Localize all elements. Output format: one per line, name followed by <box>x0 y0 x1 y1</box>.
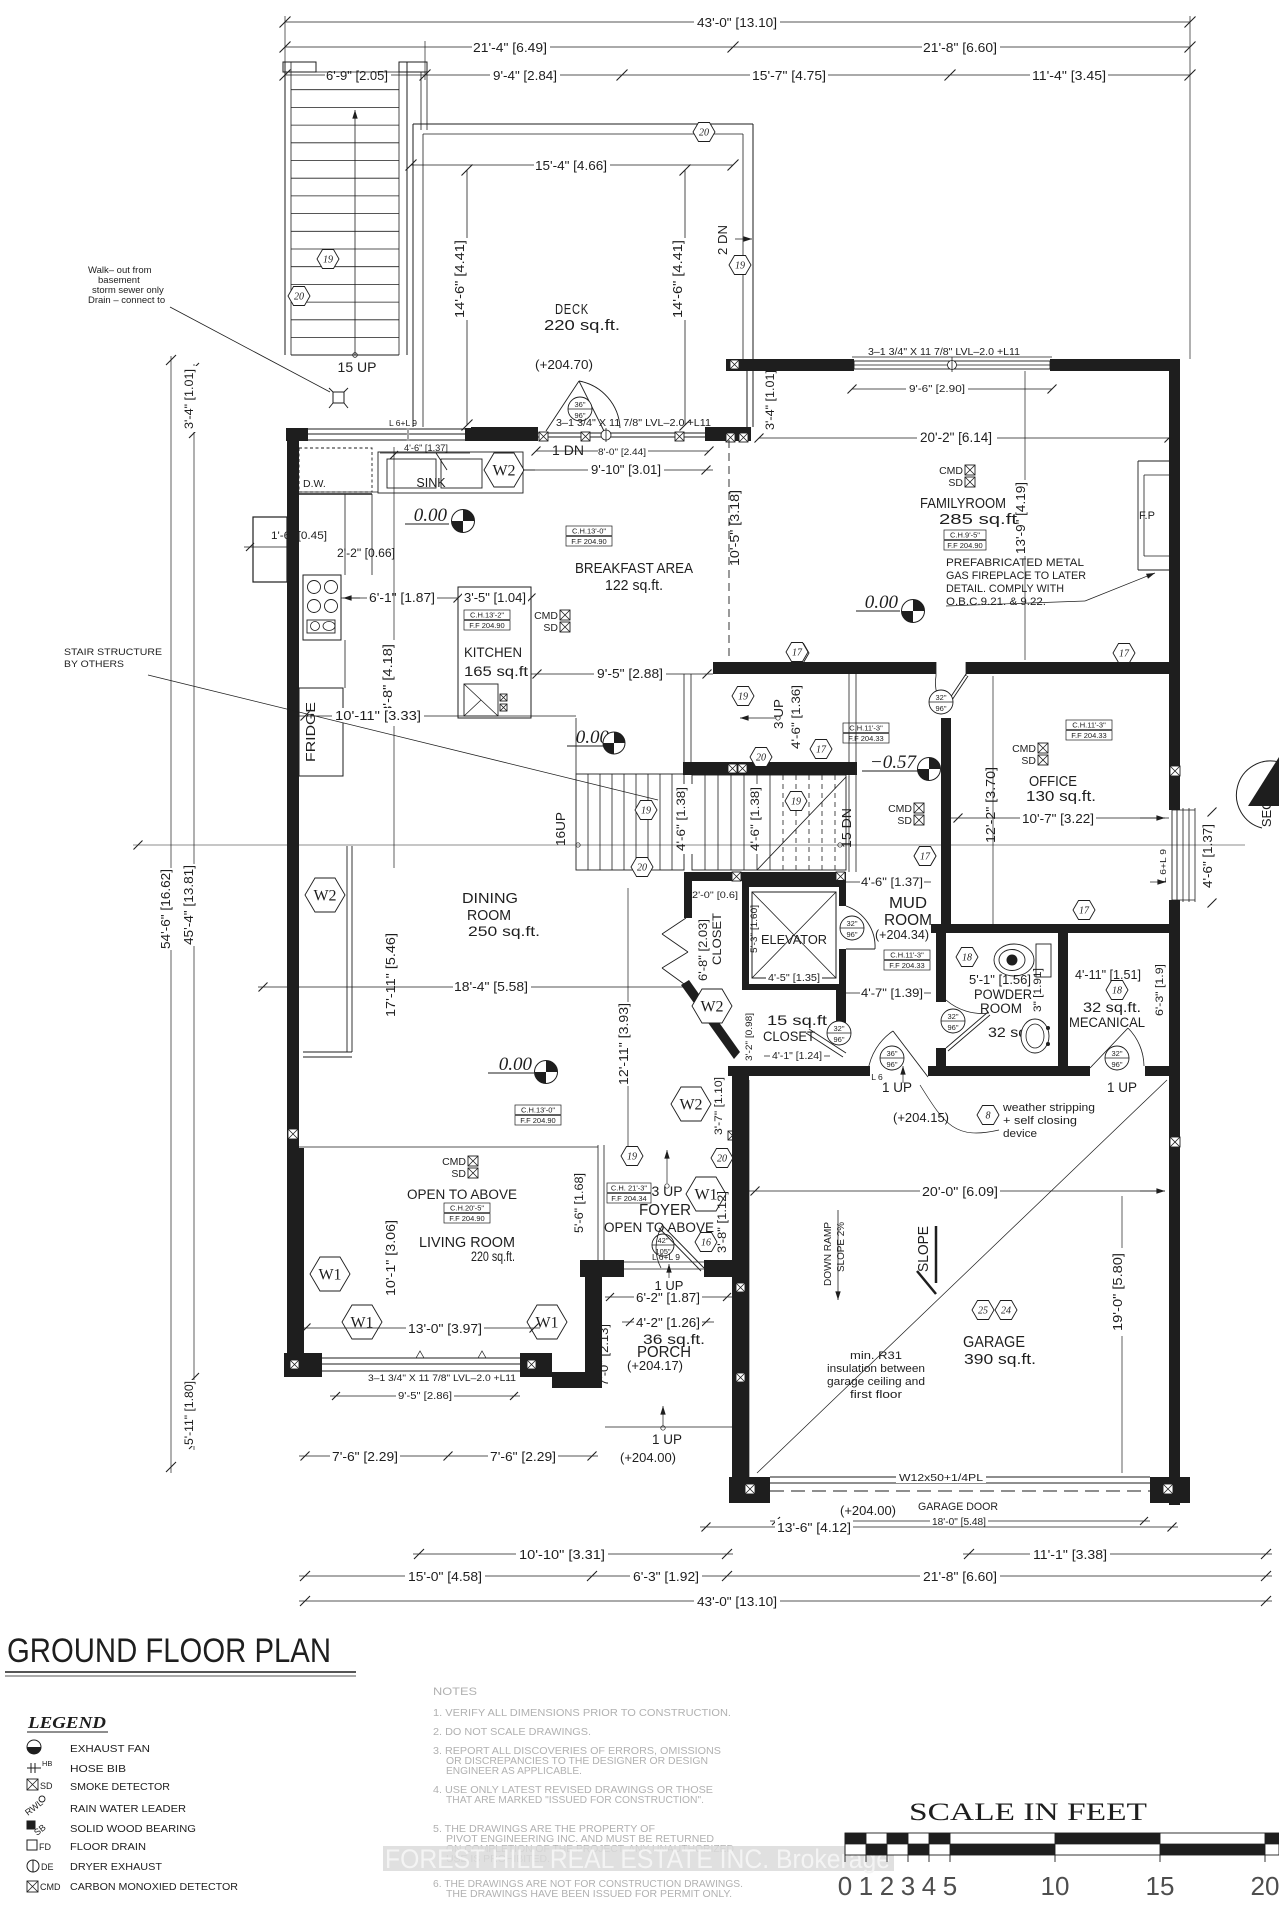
svg-text:220 sq.ft.: 220 sq.ft. <box>471 1248 515 1264</box>
svg-text:96": 96" <box>846 930 857 939</box>
svg-text:19: 19 <box>641 806 651 817</box>
svg-text:19: 19 <box>735 261 745 272</box>
svg-text:6'-2" [1.87]: 6'-2" [1.87] <box>636 1291 700 1305</box>
svg-text:0: 0 <box>838 1871 852 1901</box>
svg-text:5'-11" [1.80]: 5'-11" [1.80] <box>182 1381 196 1445</box>
svg-text:36": 36" <box>886 1049 897 1058</box>
svg-text:4'-6" [1.38]: 4'-6" [1.38] <box>748 787 762 851</box>
svg-text:DINING: DINING <box>462 890 518 907</box>
svg-text:insulation between: insulation between <box>827 1363 925 1375</box>
svg-text:13'-6" [4.12]: 13'-6" [4.12] <box>777 1521 851 1535</box>
svg-text:2 DN: 2 DN <box>715 225 730 255</box>
svg-text:10'-10" [3.31]: 10'-10" [3.31] <box>519 1547 605 1562</box>
svg-text:7'-0" [2.13]: 7'-0" [2.13] <box>599 1324 611 1386</box>
svg-text:W2: W2 <box>492 463 515 480</box>
svg-text:15'-7" [4.75]: 15'-7" [4.75] <box>752 68 826 83</box>
svg-text:9'-5" [2.88]: 9'-5" [2.88] <box>597 667 663 681</box>
svg-text:GARAGE DOOR: GARAGE DOOR <box>918 1501 998 1513</box>
svg-text:F.P: F.P <box>1139 510 1155 522</box>
svg-text:20: 20 <box>699 128 709 139</box>
svg-text:17'-11" [5.46]: 17'-11" [5.46] <box>384 933 398 1017</box>
svg-text:(+204.15): (+204.15) <box>893 1110 949 1125</box>
svg-text:6'-9" [2.05]: 6'-9" [2.05] <box>326 68 388 83</box>
svg-text:11'-1" [3.38]: 11'-1" [3.38] <box>1033 1547 1107 1562</box>
svg-text:1. VERIFY ALL DIMENSIONS P: 1. VERIFY ALL DIMENSIONS PRIOR TO CONSTR… <box>433 1708 731 1719</box>
svg-text:2: 2 <box>880 1871 894 1901</box>
svg-text:SD: SD <box>897 815 912 827</box>
svg-text:NOTES: NOTES <box>433 1686 477 1698</box>
svg-text:32 sq.ft.: 32 sq.ft. <box>1083 1000 1141 1015</box>
svg-text:18: 18 <box>962 953 972 964</box>
svg-text:16UP: 16UP <box>554 812 568 846</box>
svg-text:OPEN TO ABOVE: OPEN TO ABOVE <box>407 1187 517 1202</box>
svg-text:3'-8" [1.12]: 3'-8" [1.12] <box>717 1191 729 1253</box>
svg-text:54'-6" [16.62]: 54'-6" [16.62] <box>159 869 173 949</box>
svg-text:14'-6" [4.41]: 14'-6" [4.41] <box>452 240 467 318</box>
svg-text:SMOKE DETECTOR: SMOKE DETECTOR <box>70 1781 170 1793</box>
svg-text:20: 20 <box>717 1154 727 1165</box>
svg-text:GROUND FLOOR PLAN: GROUND FLOOR PLAN <box>7 1632 331 1670</box>
svg-text:CMD: CMD <box>888 803 912 815</box>
svg-text:9'-10" [3.01]: 9'-10" [3.01] <box>591 463 661 477</box>
svg-text:weather stripping: weather stripping <box>1002 1102 1095 1114</box>
svg-text:9'-5" [2.86]: 9'-5" [2.86] <box>398 1391 452 1402</box>
svg-text:F.F 204.90: F.F 204.90 <box>520 1116 555 1125</box>
svg-text:STAIR STRUCTURE: STAIR STRUCTURE <box>64 647 162 658</box>
svg-text:165 sq.ft: 165 sq.ft <box>464 664 528 679</box>
svg-text:THAT ARE MARKED "ISSUED FO: THAT ARE MARKED "ISSUED FOR CONSTRUCTION… <box>446 1795 704 1806</box>
svg-text:19'-0" [5.80]: 19'-0" [5.80] <box>1111 1253 1125 1331</box>
svg-text:5: 5 <box>943 1871 957 1901</box>
svg-text:1 UP: 1 UP <box>882 1080 912 1095</box>
svg-text:C.H.13'-2": C.H.13'-2" <box>470 611 504 620</box>
svg-text:4'-11" [1.51]: 4'-11" [1.51] <box>1075 968 1141 982</box>
svg-text:FAMILYROOM: FAMILYROOM <box>920 496 1006 512</box>
svg-text:6'-1" [1.87]: 6'-1" [1.87] <box>369 591 435 605</box>
svg-text:96": 96" <box>1111 1060 1122 1069</box>
svg-text:14'-6" [4.41]: 14'-6" [4.41] <box>670 240 685 318</box>
svg-text:20'-2" [6.14]: 20'-2" [6.14] <box>920 430 992 445</box>
svg-text:F.F 204.90: F.F 204.90 <box>469 621 504 630</box>
svg-text:CLOSET: CLOSET <box>763 1028 815 1044</box>
svg-text:4'-6" [1.36]: 4'-6" [1.36] <box>789 685 803 749</box>
svg-text:7'-6" [2.29]: 7'-6" [2.29] <box>332 1450 398 1464</box>
svg-text:SLOPE 2%: SLOPE 2% <box>835 1222 847 1272</box>
svg-text:96": 96" <box>833 1035 844 1044</box>
svg-text:32": 32" <box>833 1024 844 1033</box>
svg-text:LEGEND: LEGEND <box>27 1713 106 1732</box>
svg-text:3'-5" [1.04]: 3'-5" [1.04] <box>464 591 526 605</box>
svg-text:ENGINEER AS APPLICABLE.: ENGINEER AS APPLICABLE. <box>446 1766 582 1777</box>
svg-text:SD: SD <box>451 1168 466 1180</box>
svg-text:96": 96" <box>947 1023 958 1032</box>
svg-text:SOLID WOOD BEARING: SOLID WOOD BEARING <box>70 1823 196 1835</box>
svg-text:18'-4" [5.58]: 18'-4" [5.58] <box>454 980 528 994</box>
svg-text:SD: SD <box>948 477 963 489</box>
svg-text:D.W.: D.W. <box>303 478 326 490</box>
svg-text:HB: HB <box>42 1759 52 1768</box>
svg-text:F.F 204.90: F.F 204.90 <box>947 541 982 550</box>
svg-text:SINK: SINK <box>416 476 446 490</box>
svg-text:BREAKFAST AREA: BREAKFAST AREA <box>575 561 693 577</box>
svg-text:17: 17 <box>920 852 931 863</box>
svg-text:4'-2" [1.26]: 4'-2" [1.26] <box>636 1316 700 1330</box>
svg-text:5'-3" [1.60]: 5'-3" [1.60] <box>749 905 760 953</box>
svg-text:F.F 204.33: F.F 204.33 <box>1071 731 1106 740</box>
svg-text:17: 17 <box>792 648 803 659</box>
svg-text:1: 1 <box>859 1871 873 1901</box>
svg-text:4'-5" [1.35]: 4'-5" [1.35] <box>768 973 820 984</box>
svg-text:CMD: CMD <box>442 1156 466 1168</box>
svg-text:20: 20 <box>637 863 647 874</box>
svg-text:POWDER: POWDER <box>974 987 1032 1002</box>
svg-text:garage ceiling and: garage ceiling and <box>827 1376 925 1388</box>
svg-text:W2: W2 <box>679 1097 702 1114</box>
svg-text:OFFICE: OFFICE <box>1029 774 1077 790</box>
svg-text:21'-8" [6.60]: 21'-8" [6.60] <box>923 40 997 55</box>
svg-text:THE DRAWINGS HAVE BEEN ISS: THE DRAWINGS HAVE BEEN ISSUED FOR PERMIT… <box>446 1889 732 1900</box>
svg-text:CMD: CMD <box>534 610 558 622</box>
svg-text:21'-4" [6.49]: 21'-4" [6.49] <box>473 40 547 55</box>
svg-text:CMD: CMD <box>939 465 963 477</box>
svg-text:21'-8" [6.60]: 21'-8" [6.60] <box>923 1569 997 1584</box>
svg-text:15'-4" [4.66]: 15'-4" [4.66] <box>535 158 607 173</box>
svg-text:220 sq.ft.: 220 sq.ft. <box>544 317 620 334</box>
svg-text:20: 20 <box>1251 1871 1279 1901</box>
svg-text:ROOM: ROOM <box>884 912 932 929</box>
svg-text:C.H.20'-5": C.H.20'-5" <box>450 1204 484 1213</box>
svg-text:15'-0" [4.58]: 15'-0" [4.58] <box>408 1569 482 1584</box>
svg-text:96": 96" <box>886 1060 897 1069</box>
svg-text:C.H.9'-5": C.H.9'-5" <box>950 531 980 540</box>
svg-text:3'-2" [0.98]: 3'-2" [0.98] <box>744 1013 755 1061</box>
svg-text:SCALE IN FEET: SCALE IN FEET <box>909 1799 1147 1826</box>
svg-text:15: 15 <box>1146 1871 1175 1901</box>
svg-text:FLOOR DRAIN: FLOOR DRAIN <box>70 1841 146 1853</box>
svg-text:5'-1" [1.56]: 5'-1" [1.56] <box>969 973 1031 987</box>
svg-text:4'-6" [1.37]: 4'-6" [1.37] <box>861 875 923 889</box>
svg-text:42": 42" <box>657 1236 668 1245</box>
svg-text:18'-0" [5.48]: 18'-0" [5.48] <box>932 1517 986 1528</box>
svg-text:C.H.11'-3": C.H.11'-3" <box>849 724 883 733</box>
svg-text:2. DO NOT SCALE DRAWINGS.: 2. DO NOT SCALE DRAWINGS. <box>433 1727 591 1738</box>
svg-text:19: 19 <box>323 255 333 266</box>
svg-text:3 UP: 3 UP <box>772 699 786 729</box>
svg-text:−0.57: −0.57 <box>870 752 918 773</box>
svg-text:DOWN RAMP: DOWN RAMP <box>822 1222 834 1286</box>
svg-text:15 DN: 15 DN <box>840 808 854 848</box>
svg-text:13'-9" [4.19]: 13'-9" [4.19] <box>1014 482 1028 554</box>
svg-text:5'-6" [1.68]: 5'-6" [1.68] <box>574 1173 586 1233</box>
svg-text:4'-6" [1.37]: 4'-6" [1.37] <box>1201 824 1215 888</box>
svg-text:17: 17 <box>1079 906 1090 917</box>
svg-text:FRIDGE: FRIDGE <box>304 702 318 762</box>
svg-text:32": 32" <box>935 693 946 702</box>
svg-text:W1: W1 <box>694 1187 717 1204</box>
svg-text:18: 18 <box>1112 986 1122 997</box>
svg-text:C.H.13'-0": C.H.13'-0" <box>521 1106 555 1115</box>
svg-text:3'-4" [1.01]: 3'-4" [1.01] <box>182 369 196 429</box>
svg-text:12'-2" [3.70]: 12'-2" [3.70] <box>984 767 998 843</box>
svg-text:CLOSET: CLOSET <box>710 912 724 965</box>
svg-text:19: 19 <box>627 1152 637 1163</box>
svg-text:C.H.13'-0": C.H.13'-0" <box>572 527 606 536</box>
svg-text:36": 36" <box>574 400 585 409</box>
svg-text:32": 32" <box>947 1012 958 1021</box>
svg-text:W2: W2 <box>313 888 336 905</box>
svg-text:RAIN WATER LEADER: RAIN WATER LEADER <box>70 1803 186 1815</box>
svg-text:24: 24 <box>1001 1306 1011 1317</box>
svg-text:13'-0" [3.97]: 13'-0" [3.97] <box>408 1322 482 1336</box>
svg-text:6'-8" [2.03]: 6'-8" [2.03] <box>696 919 710 981</box>
svg-text:4: 4 <box>922 1871 936 1901</box>
svg-text:FOREST HILL REAL ESTATE INC. B: FOREST HILL REAL ESTATE INC. Brokerage <box>385 1844 890 1874</box>
svg-text:W2: W2 <box>700 999 723 1016</box>
svg-text:122 sq.ft.: 122 sq.ft. <box>605 578 663 594</box>
svg-text:43'-0" [13.10]: 43'-0" [13.10] <box>697 1594 777 1609</box>
svg-text:+ self closing: + self closing <box>1003 1115 1077 1127</box>
svg-text:SEC.: SEC. <box>1259 797 1274 827</box>
svg-text:(+204.34): (+204.34) <box>875 928 929 942</box>
svg-text:2'-0" [0.6]: 2'-0" [0.6] <box>692 890 738 901</box>
svg-text:3–1 3/4" X 11 7/8" LVL–2.0 +L1: 3–1 3/4" X 11 7/8" LVL–2.0 +L11 <box>868 347 1020 358</box>
svg-text:25: 25 <box>978 1306 988 1317</box>
svg-text:W1: W1 <box>350 1315 373 1332</box>
svg-text:HOSE BIB: HOSE BIB <box>70 1763 126 1775</box>
svg-text:CARBON MONOXIED DETECTOR: CARBON MONOXIED DETECTOR <box>70 1881 238 1893</box>
svg-text:2'-2" [0.66]: 2'-2" [0.66] <box>337 548 395 560</box>
svg-text:CMD: CMD <box>1012 743 1036 755</box>
svg-text:W1: W1 <box>535 1315 558 1332</box>
svg-text:min. R31: min. R31 <box>850 1350 902 1362</box>
svg-text:(+204.17): (+204.17) <box>627 1359 683 1373</box>
svg-text:1'-6" [0.45]: 1'-6" [0.45] <box>271 530 327 542</box>
svg-text:EXHAUST FAN: EXHAUST FAN <box>70 1743 150 1755</box>
svg-text:0.00: 0.00 <box>499 1054 533 1075</box>
svg-text:4'-1" [1.24]: 4'-1" [1.24] <box>772 1051 822 1062</box>
svg-text:L 6+L 9: L 6+L 9 <box>389 418 417 428</box>
svg-text:DRYER EXHAUST: DRYER EXHAUST <box>70 1861 163 1873</box>
svg-text:C.H. 21'-3": C.H. 21'-3" <box>611 1184 648 1193</box>
svg-text:C.H.11'-3": C.H.11'-3" <box>1072 721 1106 730</box>
svg-text:6'-3" [1.9]: 6'-3" [1.9] <box>1154 964 1166 1016</box>
svg-text:F.F 204.33: F.F 204.33 <box>889 961 924 970</box>
svg-text:32": 32" <box>1111 1049 1122 1058</box>
svg-text:CMD: CMD <box>40 1882 61 1892</box>
svg-text:DETAIL. COMPLY WITH: DETAIL. COMPLY WITH <box>946 583 1064 595</box>
svg-text:W1: W1 <box>318 1267 341 1284</box>
svg-text:1 UP: 1 UP <box>1107 1080 1137 1095</box>
svg-text:9'-6" [2.90]: 9'-6" [2.90] <box>909 383 965 395</box>
svg-text:0.00: 0.00 <box>865 592 899 613</box>
svg-text:285 sq.ft: 285 sq.ft <box>939 512 1017 528</box>
svg-text:250 sq.ft.: 250 sq.ft. <box>468 923 540 939</box>
svg-text:device: device <box>1003 1128 1037 1140</box>
svg-text:PREFABRICATED METAL: PREFABRICATED METAL <box>946 557 1084 569</box>
svg-text:15 UP: 15 UP <box>338 359 377 375</box>
svg-text:0.00: 0.00 <box>414 505 448 526</box>
svg-text:GARAGE: GARAGE <box>963 1334 1025 1351</box>
svg-text:SD: SD <box>1021 755 1036 767</box>
svg-text:19: 19 <box>791 797 801 808</box>
svg-text:10: 10 <box>1041 1871 1070 1901</box>
svg-text:(+204.00): (+204.00) <box>840 1503 896 1518</box>
svg-text:10'-11" [3.33]: 10'-11" [3.33] <box>335 709 421 723</box>
svg-text:DE: DE <box>41 1862 54 1872</box>
svg-text:8: 8 <box>986 1111 991 1122</box>
svg-text:4'-7" [1.39]: 4'-7" [1.39] <box>861 986 923 1000</box>
svg-text:1 UP: 1 UP <box>652 1432 682 1447</box>
svg-text:SD: SD <box>543 622 558 634</box>
svg-text:BY OTHERS: BY OTHERS <box>64 659 124 670</box>
svg-text:first floor: first floor <box>850 1389 902 1401</box>
svg-text:16: 16 <box>701 1238 711 1249</box>
svg-text:17: 17 <box>1119 649 1130 660</box>
svg-text:3" [1.91]: 3" [1.91] <box>1032 968 1044 1012</box>
svg-text:O.B.C.9.21. & 9.22.: O.B.C.9.21. & 9.22. <box>946 596 1046 608</box>
svg-text:3–1 3/4" X 11 7/8" LVL–2.0 +L1: 3–1 3/4" X 11 7/8" LVL–2.0 +L11 <box>556 418 711 429</box>
svg-text:15 sq.ft: 15 sq.ft <box>767 1012 827 1028</box>
svg-text:ROOM: ROOM <box>467 907 511 924</box>
svg-text:17: 17 <box>816 745 827 756</box>
svg-text:6'-3" [1.92]: 6'-3" [1.92] <box>633 1569 699 1584</box>
svg-text:10'-1" [3.06]: 10'-1" [3.06] <box>384 1220 398 1296</box>
svg-text:9'-4" [2.84]: 9'-4" [2.84] <box>493 68 557 83</box>
svg-text:20'-0" [6.09]: 20'-0" [6.09] <box>922 1184 998 1199</box>
svg-text:96": 96" <box>935 704 946 713</box>
svg-text:130 sq.ft.: 130 sq.ft. <box>1026 789 1096 805</box>
svg-text:10'-5" [3.18]: 10'-5" [3.18] <box>728 490 742 566</box>
svg-text:12'-11" [3.93]: 12'-11" [3.93] <box>617 1003 631 1085</box>
svg-text:L 6+L 9: L 6+L 9 <box>1158 849 1168 883</box>
svg-text:8'-0" [2.44]: 8'-0" [2.44] <box>598 447 646 458</box>
svg-text:F.F 204.90: F.F 204.90 <box>449 1214 484 1223</box>
svg-text:10'-7" [3.22]: 10'-7" [3.22] <box>1022 812 1094 826</box>
svg-text:F.F 204.90: F.F 204.90 <box>571 537 606 546</box>
svg-text:43'-0" [13.10]: 43'-0" [13.10] <box>697 15 777 30</box>
svg-text:GAS FIREPLACE TO LATER: GAS FIREPLACE TO LATER <box>946 570 1086 582</box>
svg-text:20: 20 <box>756 753 766 764</box>
svg-text:(+204.70): (+204.70) <box>535 357 593 372</box>
svg-text:FD: FD <box>39 1842 51 1852</box>
svg-text:MECANICAL: MECANICAL <box>1069 1015 1145 1030</box>
svg-text:3 UP: 3 UP <box>651 1183 682 1199</box>
svg-text:W12x50+1/4PL: W12x50+1/4PL <box>899 1472 983 1484</box>
svg-text:32": 32" <box>846 919 857 928</box>
svg-text:FOYER: FOYER <box>639 1202 691 1219</box>
svg-text:3: 3 <box>901 1871 915 1901</box>
svg-text:DECK: DECK <box>555 301 589 318</box>
svg-text:20: 20 <box>294 292 304 303</box>
svg-text:1 DN: 1 DN <box>552 442 584 458</box>
svg-text:ROOM: ROOM <box>980 1001 1022 1016</box>
svg-text:3–1 3/4" X 11 7/8" LVL–2.0 +L1: 3–1 3/4" X 11 7/8" LVL–2.0 +L11 <box>368 1373 516 1383</box>
svg-text:Drain – connect to: Drain – connect to <box>88 295 165 306</box>
svg-text:45'-4" [13.81]: 45'-4" [13.81] <box>182 865 196 945</box>
svg-text:19: 19 <box>738 692 748 703</box>
svg-text:SD: SD <box>40 1781 53 1791</box>
svg-text:7'-6" [2.29]: 7'-6" [2.29] <box>490 1450 556 1464</box>
svg-text:(+204.00): (+204.00) <box>620 1450 676 1465</box>
svg-text:11'-4" [3.45]: 11'-4" [3.45] <box>1032 68 1106 83</box>
svg-text:3'-7" [1.10]: 3'-7" [1.10] <box>713 1077 725 1135</box>
svg-text:4'-6" [1.38]: 4'-6" [1.38] <box>674 787 688 851</box>
svg-text:MUD: MUD <box>889 895 927 912</box>
svg-text:3'-4" [1.01]: 3'-4" [1.01] <box>763 370 777 430</box>
svg-text:C.H.11'-3": C.H.11'-3" <box>890 951 924 960</box>
svg-text:SLOPE: SLOPE <box>915 1226 932 1272</box>
svg-text:ELEVATOR: ELEVATOR <box>761 932 827 947</box>
svg-text:F.F 204.33: F.F 204.33 <box>848 734 883 743</box>
svg-text:390 sq.ft.: 390 sq.ft. <box>964 1351 1036 1368</box>
svg-text:KITCHEN: KITCHEN <box>464 645 522 660</box>
